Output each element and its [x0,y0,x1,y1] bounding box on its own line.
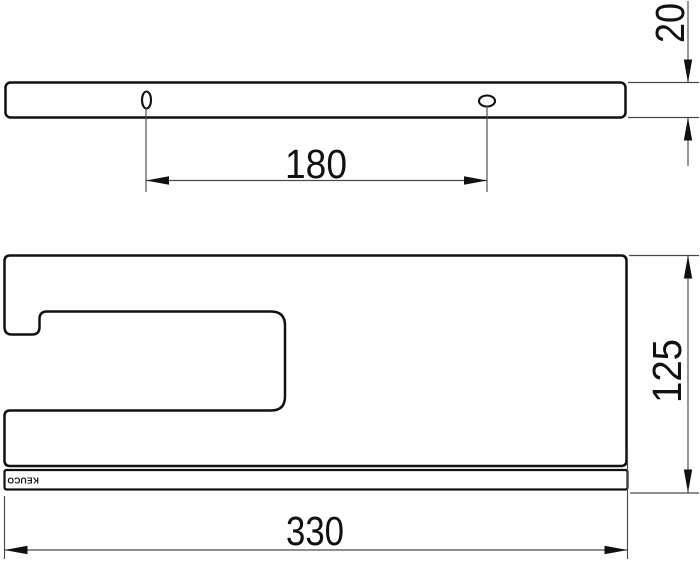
dimension-label-hole-spacing: 180 [285,141,347,187]
arrowhead-left [5,546,28,554]
dimension-label-width: 330 [286,508,344,554]
mounting-bar-outline [6,83,626,118]
dimension-label-height: 125 [644,339,690,403]
mounting-hole-left [142,92,151,109]
dimension-thickness: 20 [628,1,699,166]
arrowhead-left [146,176,169,184]
dimension-label-thickness: 20 [647,3,693,43]
arrowhead-right [605,546,628,554]
arrowhead-right [464,176,487,184]
technical-drawing-canvas: 180 20 KEUCO 125 [0,0,700,564]
shelf-profile-outline [5,256,627,467]
dimension-height: 125 [629,256,699,494]
mounting-hole-right [479,96,495,107]
arrowhead-bottom [684,118,692,141]
front-rail-outline [5,470,628,490]
dimension-hole-spacing: 180 [146,106,487,192]
arrowhead-bottom [684,470,692,493]
technical-drawing-page: 180 20 KEUCO 125 [0,0,700,564]
brand-logo: KEUCO [7,476,39,486]
arrowhead-top [684,60,692,83]
side-profile-view: KEUCO [5,256,628,490]
top-view-mounting-bar [6,83,626,118]
arrowhead-top [684,256,692,279]
